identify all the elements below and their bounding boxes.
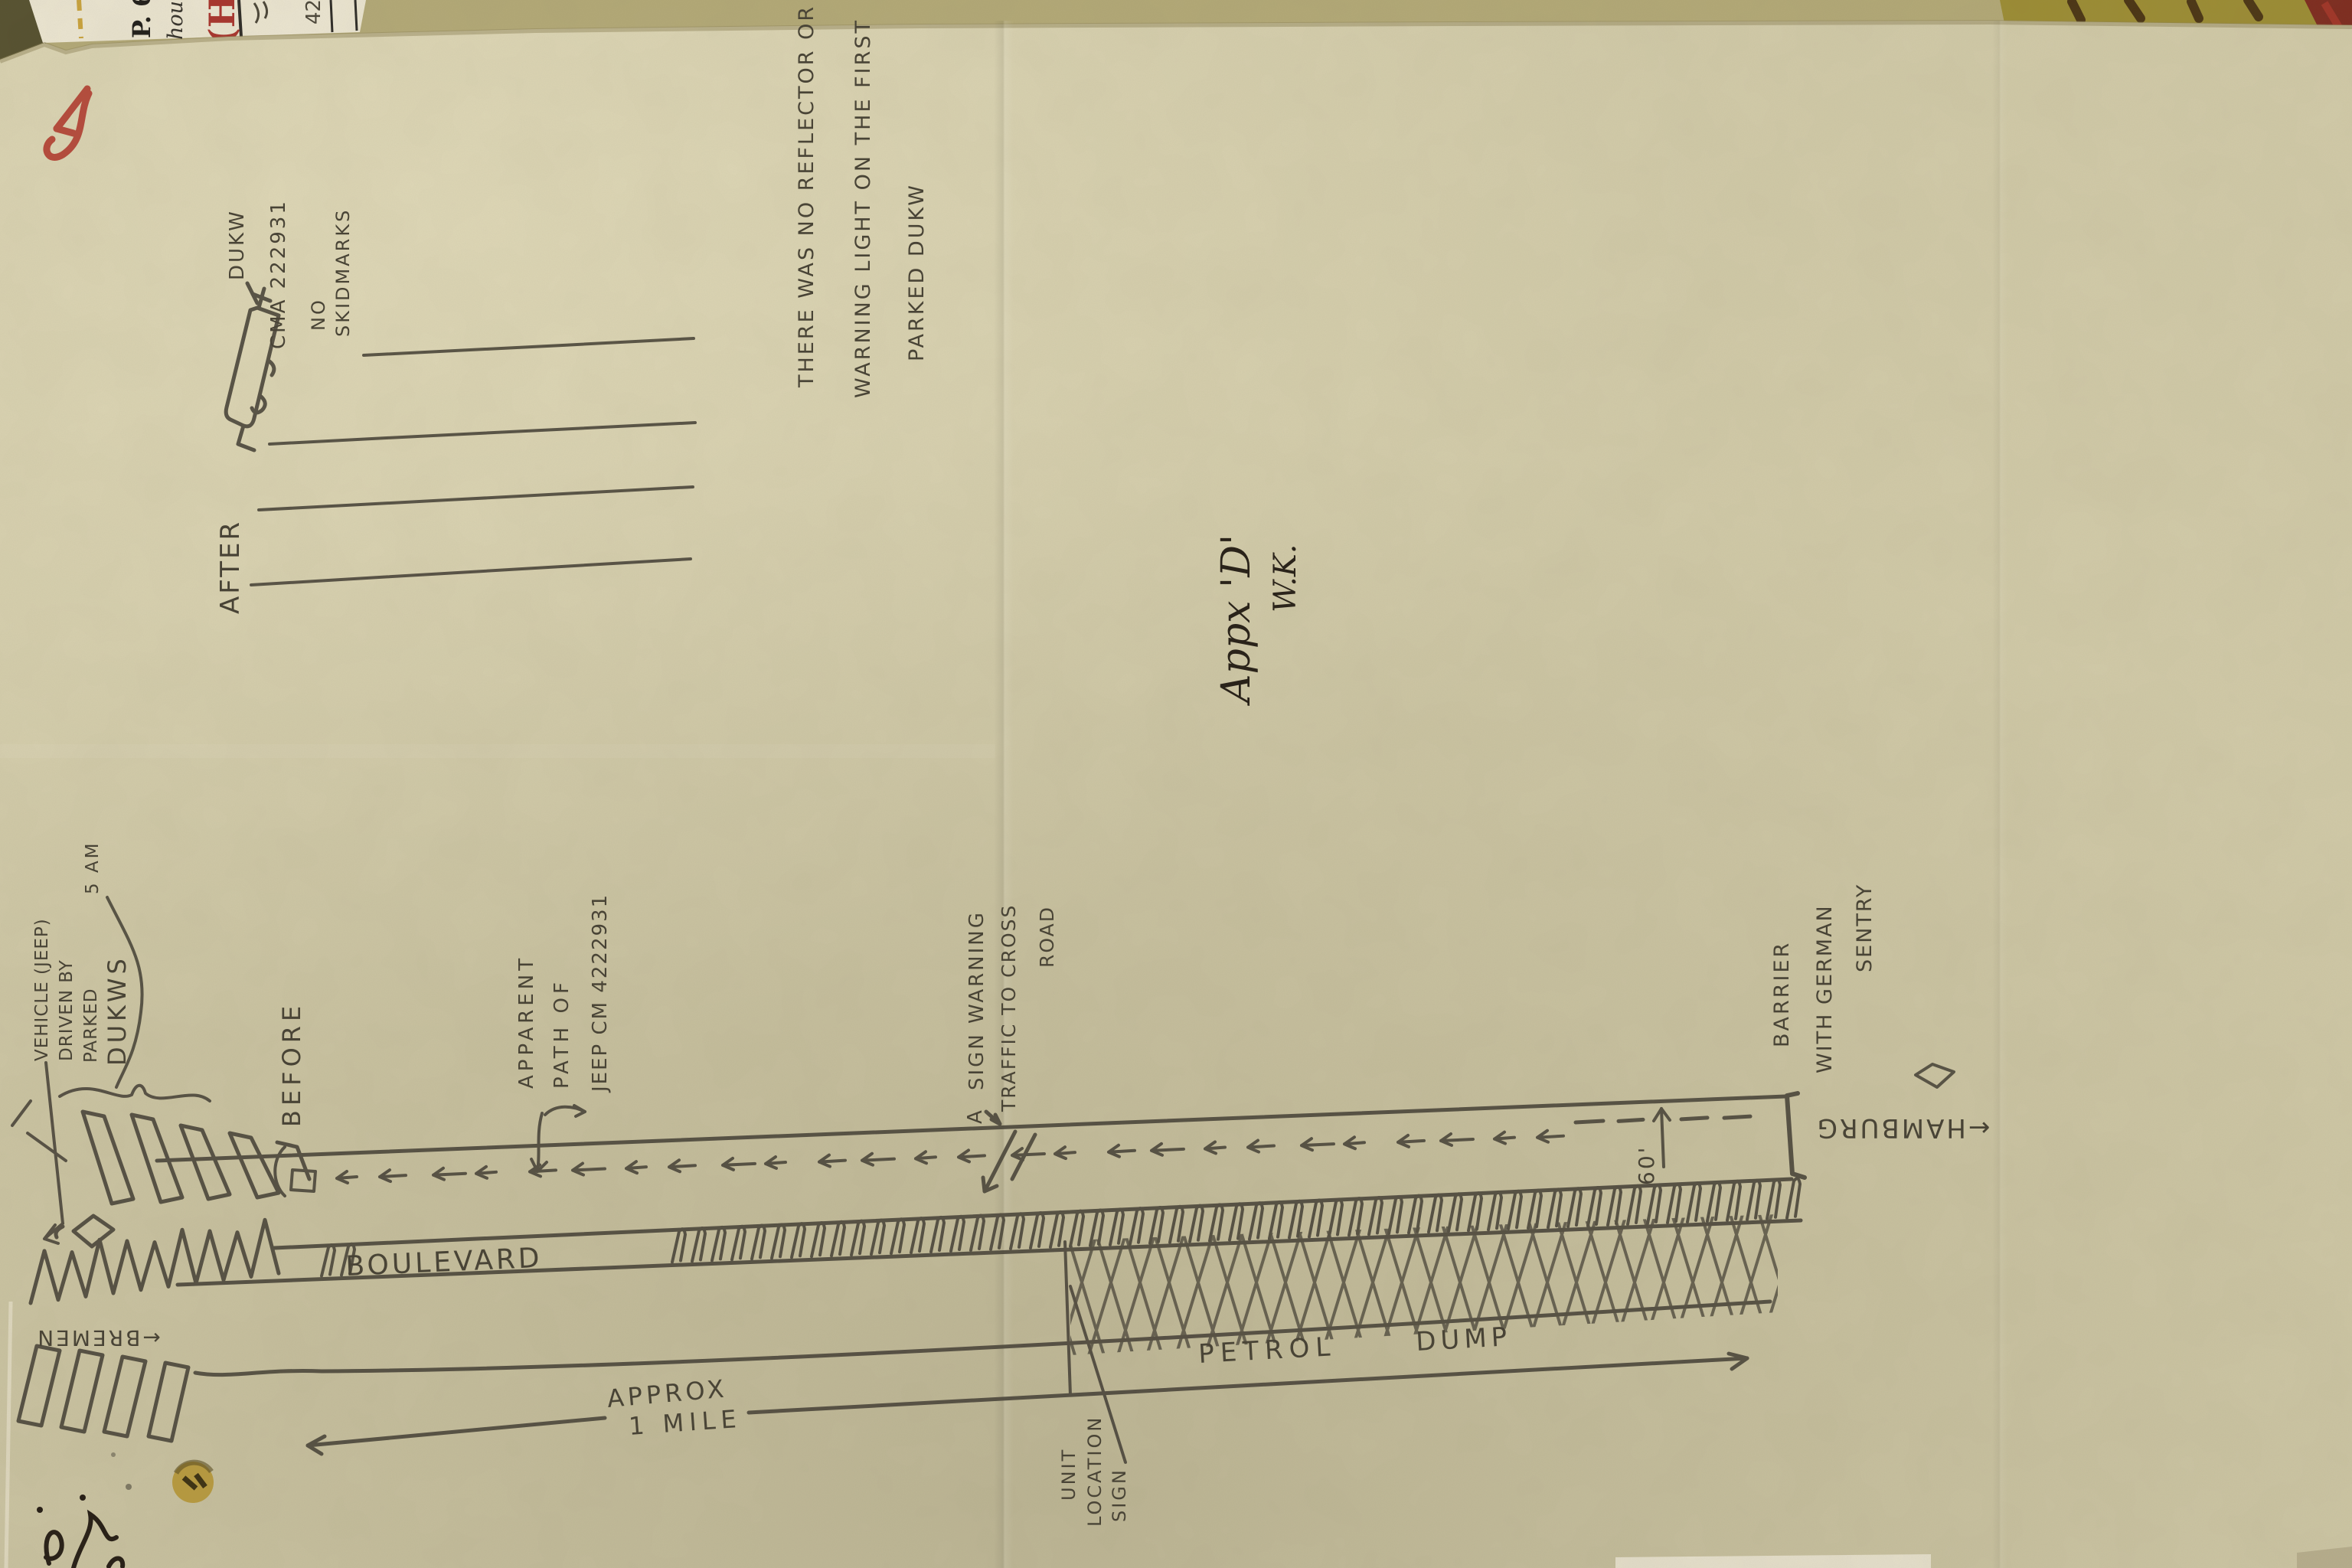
paper-grain-texture [0, 0, 2352, 1568]
photo-of-hand-drawn-accident-sketch: P. 6 houl (H) 42 5 [0, 0, 2352, 1568]
